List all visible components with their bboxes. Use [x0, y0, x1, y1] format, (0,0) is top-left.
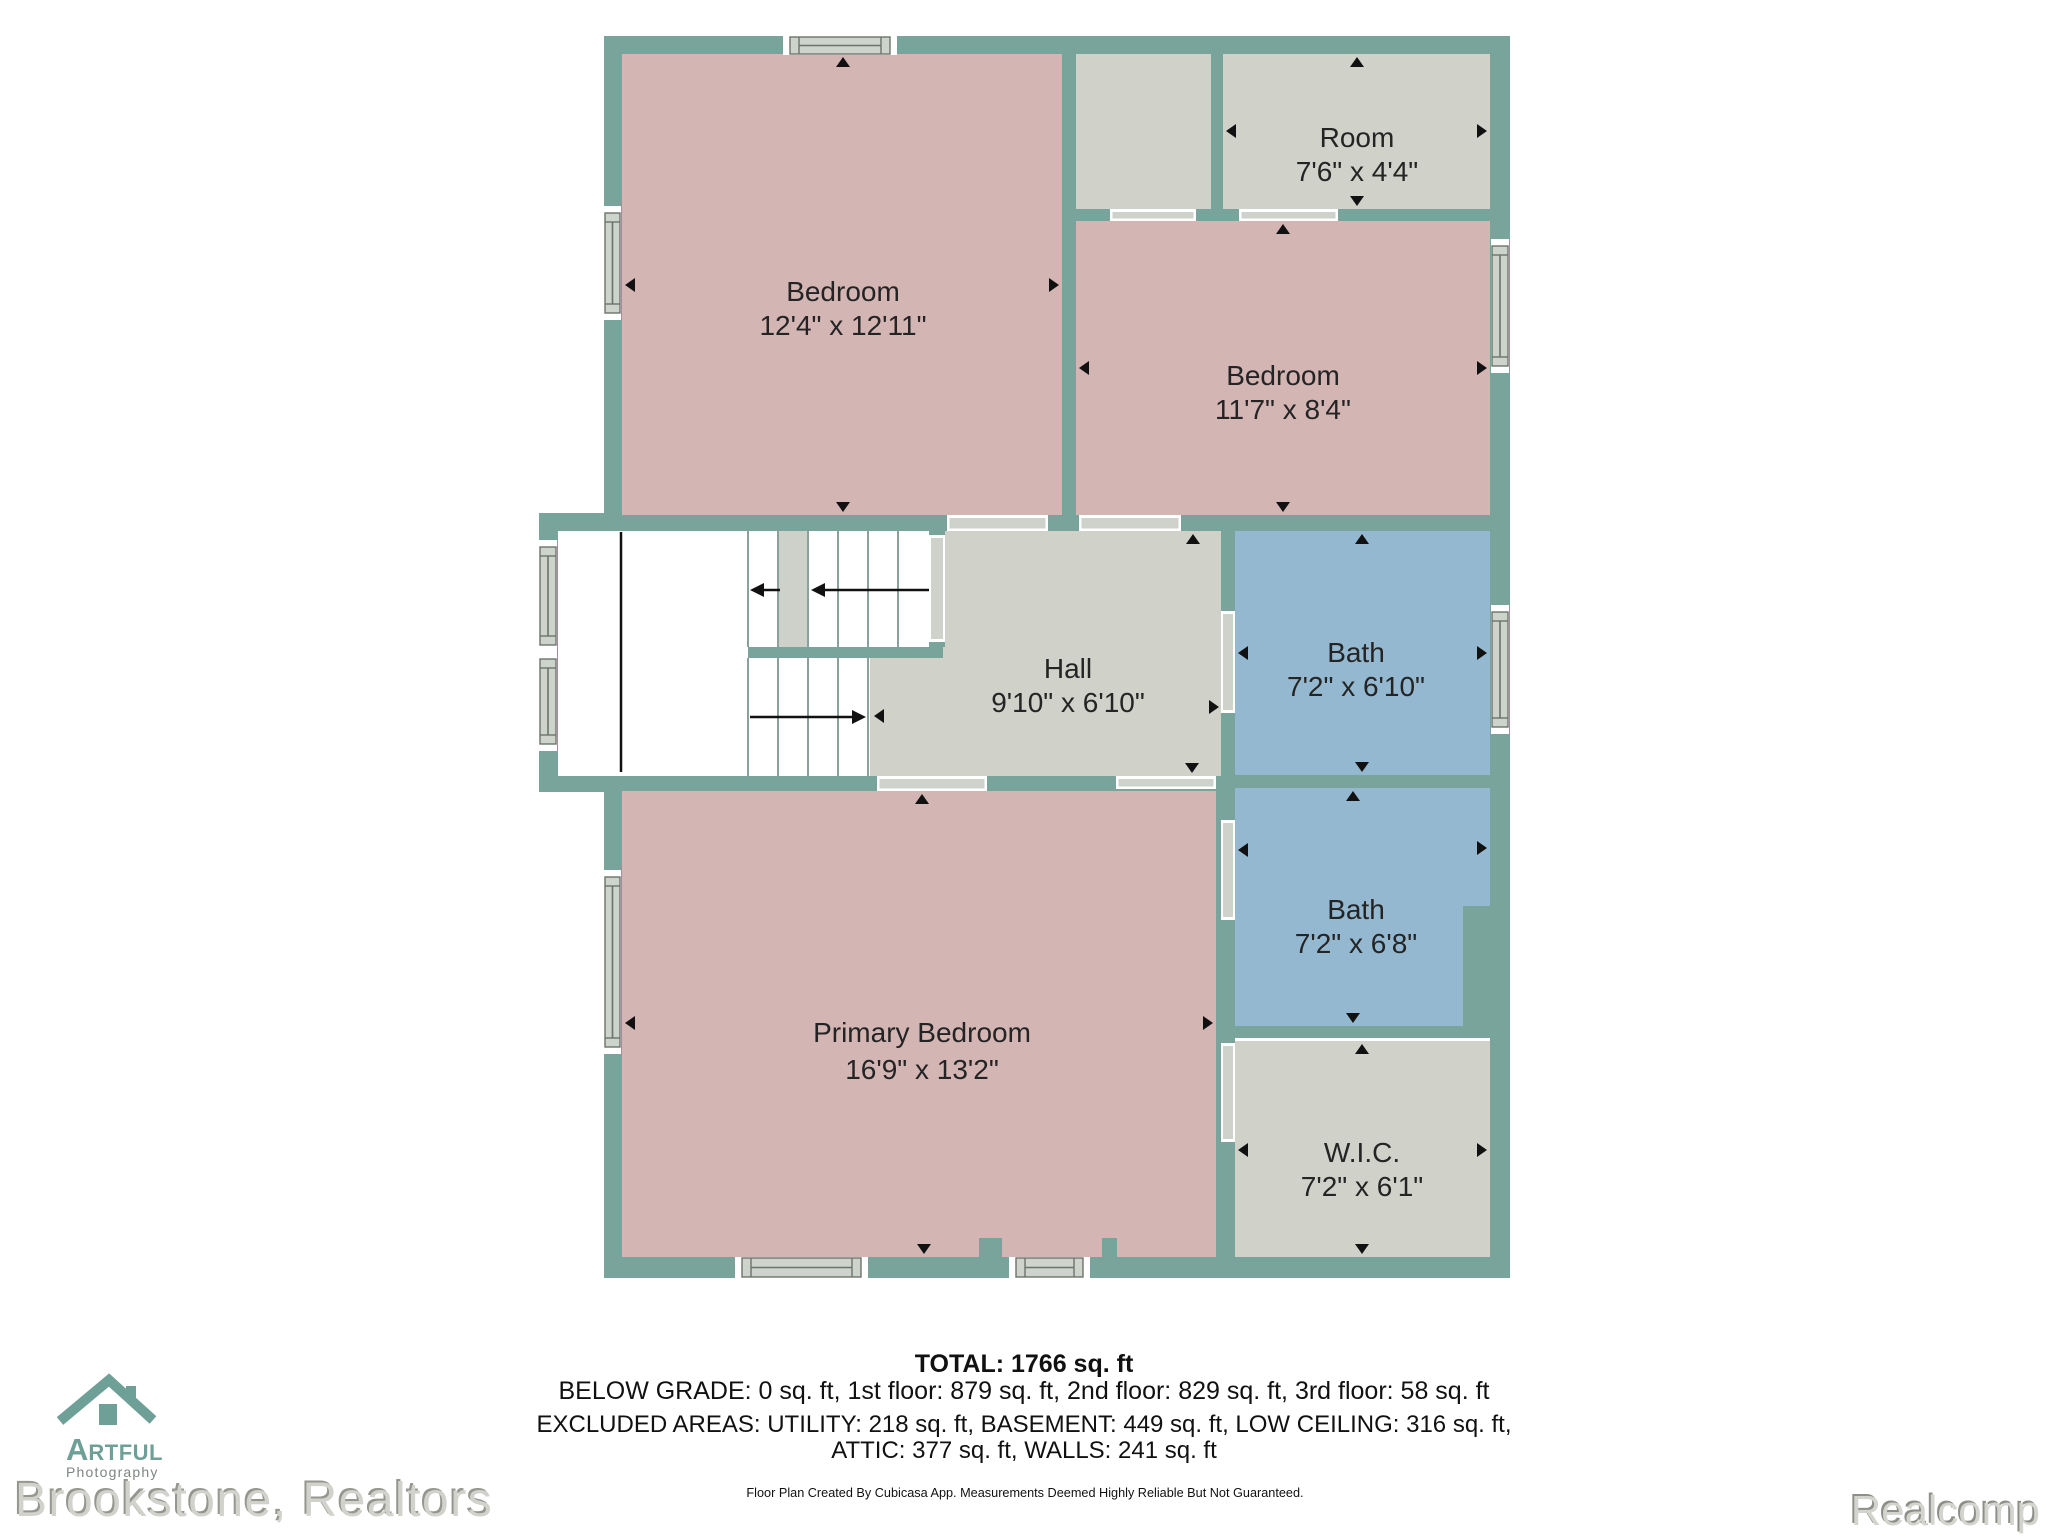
svg-text:12'4" x 12'11": 12'4" x 12'11" [759, 310, 926, 341]
svg-text:TOTAL: 1766 sq. ft: TOTAL: 1766 sq. ft [915, 1350, 1134, 1378]
svg-text:11'7" x 8'4": 11'7" x 8'4" [1215, 394, 1351, 425]
svg-text:Bedroom: Bedroom [1226, 360, 1340, 391]
svg-text:7'2" x 6'10": 7'2" x 6'10" [1287, 671, 1425, 702]
svg-text:7'6" x 4'4": 7'6" x 4'4" [1296, 156, 1418, 187]
svg-text:Bedroom: Bedroom [786, 276, 900, 307]
svg-text:Hall: Hall [1044, 653, 1092, 684]
svg-text:ATTIC: 377 sq. ft, WALLS: 241: ATTIC: 377 sq. ft, WALLS: 241 sq. ft [831, 1437, 1217, 1464]
svg-text:Brookstone, Realtors: Brookstone, Realtors [15, 1474, 493, 1527]
svg-text:7'2" x 6'1": 7'2" x 6'1" [1301, 1171, 1423, 1202]
svg-text:Primary Bedroom: Primary Bedroom [813, 1017, 1031, 1048]
svg-text:Bath: Bath [1327, 637, 1385, 668]
svg-text:Room: Room [1320, 122, 1395, 153]
svg-text:Floor Plan Created By Cubicasa: Floor Plan Created By Cubicasa App. Meas… [746, 1486, 1303, 1500]
svg-text:Bath: Bath [1327, 894, 1385, 925]
svg-text:7'2" x 6'8": 7'2" x 6'8" [1295, 928, 1417, 959]
svg-text:9'10" x 6'10": 9'10" x 6'10" [991, 687, 1145, 718]
svg-text:BELOW GRADE: 0 sq. ft, 1st flo: BELOW GRADE: 0 sq. ft, 1st floor: 879 sq… [559, 1377, 1490, 1405]
svg-text:Realcomp: Realcomp [1851, 1487, 2040, 1534]
svg-text:W.I.C.: W.I.C. [1324, 1137, 1400, 1168]
svg-text:16'9" x 13'2": 16'9" x 13'2" [845, 1054, 999, 1085]
svg-text:EXCLUDED AREAS: UTILITY: 218 s: EXCLUDED AREAS: UTILITY: 218 sq. ft, BAS… [536, 1411, 1511, 1438]
